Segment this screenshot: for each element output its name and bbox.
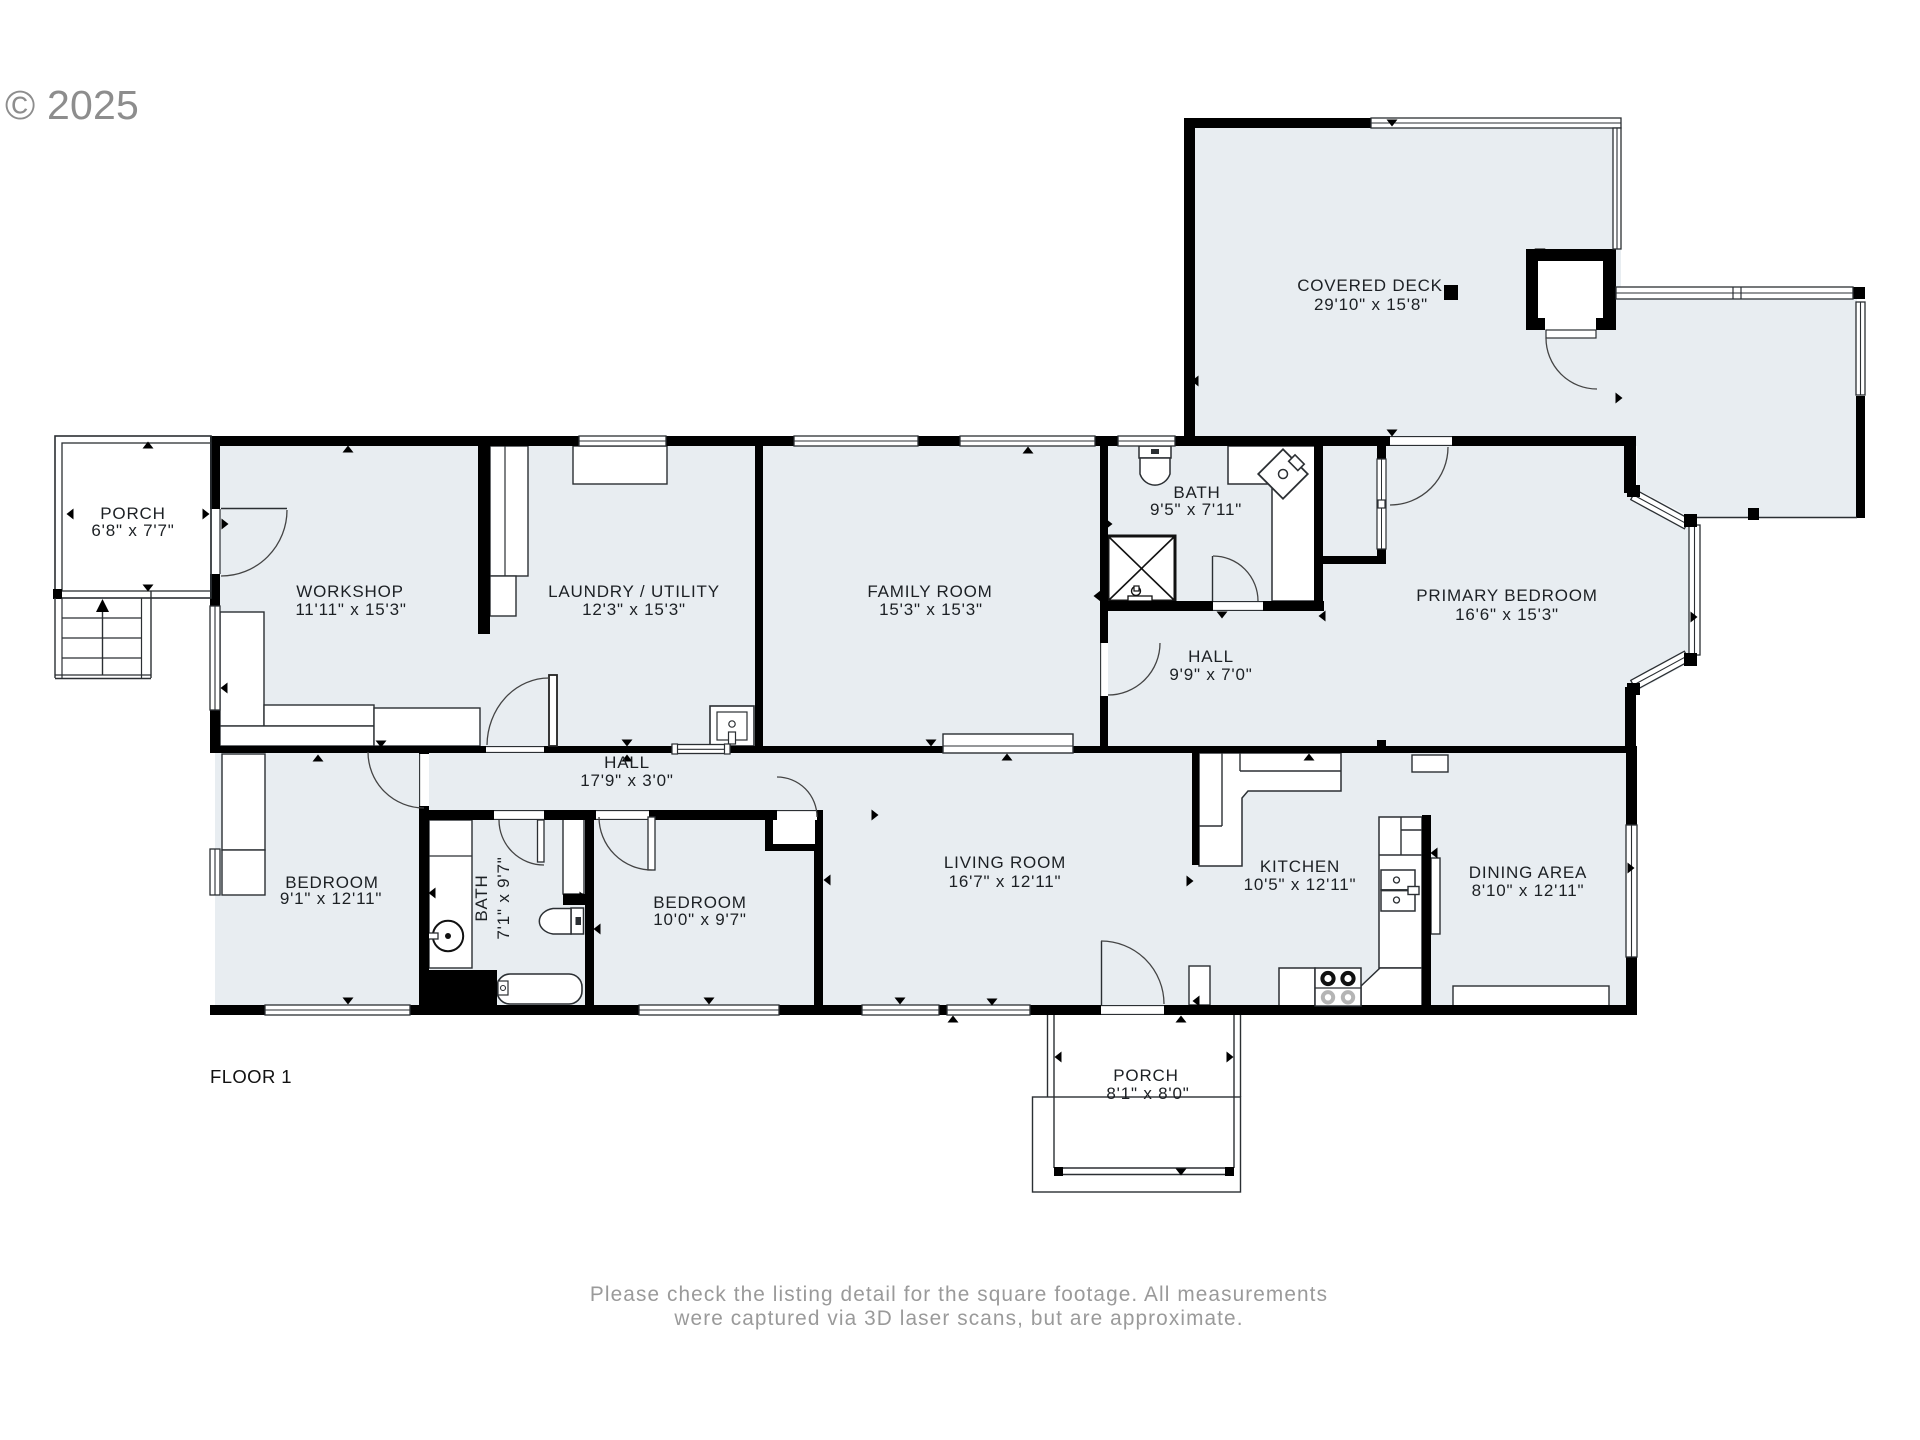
svg-text:16'6" x 15'3": 16'6" x 15'3" (1455, 605, 1559, 624)
svg-text:HALL: HALL (604, 753, 650, 772)
svg-text:COVERED DECK: COVERED DECK (1297, 276, 1443, 295)
svg-text:12'3" x 15'3": 12'3" x 15'3" (582, 600, 686, 619)
svg-text:9'5" x 7'11": 9'5" x 7'11" (1150, 500, 1242, 519)
svg-text:8'10" x 12'11": 8'10" x 12'11" (1472, 881, 1585, 900)
svg-text:7'1" x 9'7": 7'1" x 9'7" (494, 856, 513, 939)
svg-text:9'1" x 12'11": 9'1" x 12'11" (280, 889, 382, 908)
svg-text:FAMILY ROOM: FAMILY ROOM (867, 582, 992, 601)
svg-text:LIVING ROOM: LIVING ROOM (944, 853, 1066, 872)
svg-text:WORKSHOP: WORKSHOP (296, 582, 403, 601)
svg-text:11'11" x 15'3": 11'11" x 15'3" (295, 600, 406, 619)
svg-text:29'10" x 15'8": 29'10" x 15'8" (1314, 295, 1428, 314)
svg-text:17'9" x 3'0": 17'9" x 3'0" (580, 771, 673, 790)
svg-text:LAUNDRY / UTILITY: LAUNDRY / UTILITY (548, 582, 720, 601)
svg-text:DINING AREA: DINING AREA (1469, 863, 1587, 882)
svg-text:6'8" x 7'7": 6'8" x 7'7" (91, 521, 174, 540)
svg-text:were captured via 3D laser sca: were captured via 3D laser scans, but ar… (673, 1307, 1243, 1330)
svg-text:15'3" x 15'3": 15'3" x 15'3" (879, 600, 983, 619)
svg-text:FLOOR 1: FLOOR 1 (210, 1066, 292, 1087)
svg-text:9'9" x 7'0": 9'9" x 7'0" (1169, 665, 1252, 684)
svg-text:Please check the listing detai: Please check the listing detail for the … (590, 1283, 1328, 1306)
svg-text:8'1" x 8'0": 8'1" x 8'0" (1106, 1084, 1189, 1103)
svg-text:KITCHEN: KITCHEN (1260, 857, 1340, 876)
svg-text:10'0" x 9'7": 10'0" x 9'7" (653, 910, 746, 929)
svg-text:PRIMARY BEDROOM: PRIMARY BEDROOM (1416, 586, 1597, 605)
svg-text:10'5" x 12'11": 10'5" x 12'11" (1244, 875, 1357, 894)
svg-text:PORCH: PORCH (1113, 1066, 1178, 1085)
svg-text:HALL: HALL (1188, 647, 1234, 666)
svg-text:BATH: BATH (472, 874, 491, 921)
svg-text:© 2025: © 2025 (5, 82, 139, 128)
svg-text:16'7" x 12'11": 16'7" x 12'11" (949, 872, 1062, 891)
